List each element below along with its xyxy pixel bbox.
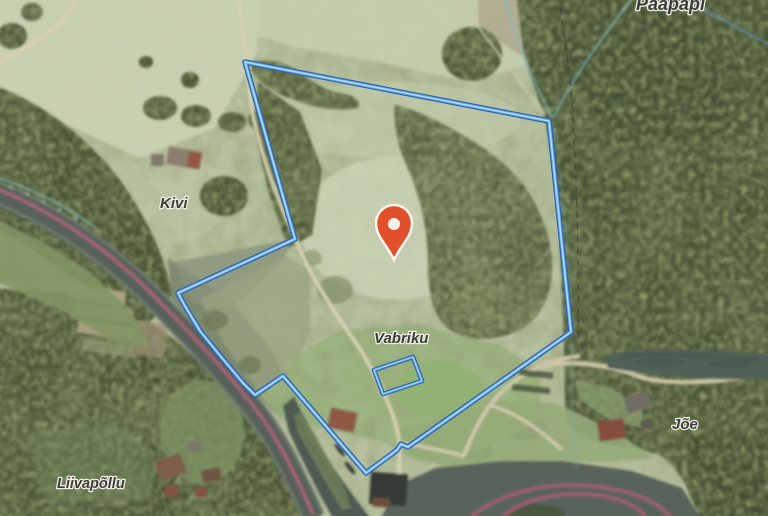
svg-text:Vabriku: Vabriku (374, 330, 428, 347)
svg-text:Liivapõllu: Liivapõllu (57, 476, 125, 492)
svg-text:Jõe: Jõe (672, 416, 698, 433)
svg-text:Kivi: Kivi (160, 195, 188, 212)
svg-text:Paapapi: Paapapi (636, 0, 706, 14)
